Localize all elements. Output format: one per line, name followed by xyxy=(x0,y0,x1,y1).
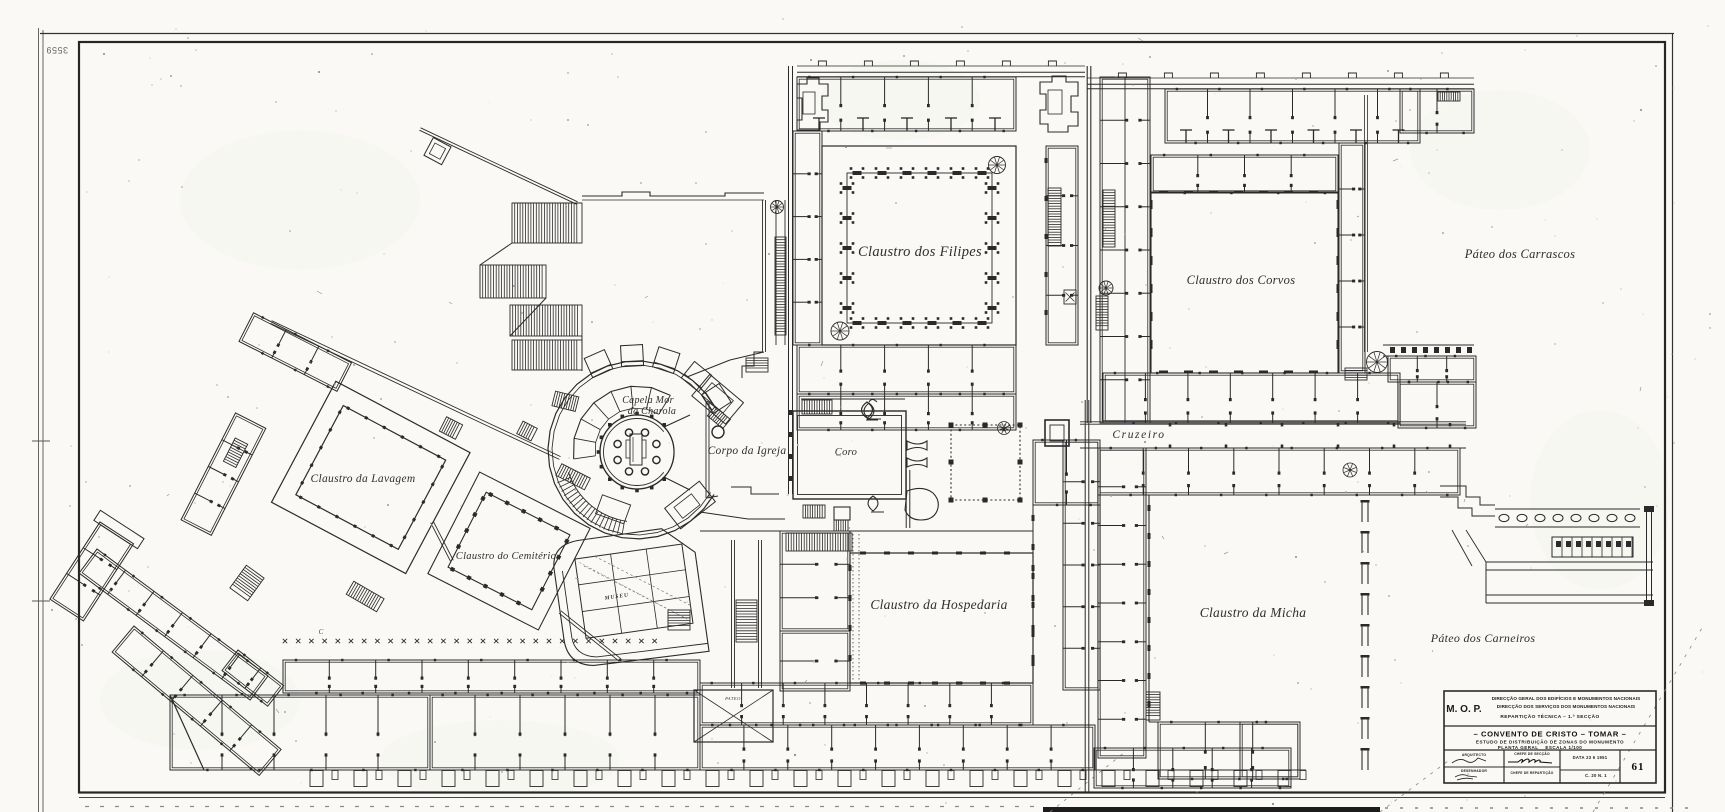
svg-text:PLANTA GERAL ESCALA 1/100: PLANTA GERAL ESCALA 1/100 xyxy=(1498,745,1583,750)
svg-text:CHEFE DE SECÇÃO: CHEFE DE SECÇÃO xyxy=(1514,751,1550,756)
svg-text:Corpo da Igreja: Corpo da Igreja xyxy=(708,445,787,457)
svg-text:M. O. P.: M. O. P. xyxy=(1446,704,1482,715)
svg-text:Coro: Coro xyxy=(835,447,857,458)
svg-text:DIRECÇÃO DOS SERVIÇOS DOS MONU: DIRECÇÃO DOS SERVIÇOS DOS MONUMENTOS NAC… xyxy=(1497,703,1635,709)
svg-text:ARQUITECTO: ARQUITECTO xyxy=(1462,753,1487,757)
svg-text:Claustro dos Corvos: Claustro dos Corvos xyxy=(1187,273,1296,287)
svg-text:da Charola: da Charola xyxy=(628,406,676,417)
svg-text:DIRECÇÃO GERAL DOS EDIFÍCIOS E: DIRECÇÃO GERAL DOS EDIFÍCIOS E MONUMENTO… xyxy=(1492,694,1641,701)
svg-text:3559: 3559 xyxy=(46,45,68,55)
svg-text:Páteo dos Carneiros: Páteo dos Carneiros xyxy=(1430,631,1536,645)
svg-text:Claustro do Cemitério: Claustro do Cemitério xyxy=(456,551,556,562)
svg-text:Claustro da Hospedaria: Claustro da Hospedaria xyxy=(870,597,1007,612)
svg-text:DATA 23 6 1951: DATA 23 6 1951 xyxy=(1573,755,1608,760)
svg-text:Claustro da Micha: Claustro da Micha xyxy=(1200,605,1307,620)
svg-text:Cruzeiro: Cruzeiro xyxy=(1112,429,1165,441)
svg-text:Páteo dos Carrascos: Páteo dos Carrascos xyxy=(1464,247,1576,261)
svg-text:DESENHADOR: DESENHADOR xyxy=(1461,769,1487,773)
svg-text:PATEO: PATEO xyxy=(724,696,741,701)
svg-text:Claustro da Lavagem: Claustro da Lavagem xyxy=(311,473,416,485)
svg-text:C. 20 N. 1: C. 20 N. 1 xyxy=(1585,773,1607,778)
svg-text:Capela Mor: Capela Mor xyxy=(622,395,674,406)
svg-text:– CONVENTO DE CRISTO – TOMAR –: – CONVENTO DE CRISTO – TOMAR – xyxy=(1473,730,1626,739)
svg-text:ESTUDO DE DISTRIBUIÇÃO DE ZONA: ESTUDO DE DISTRIBUIÇÃO DE ZONAS DO MONUM… xyxy=(1476,739,1624,745)
svg-text:C: C xyxy=(319,628,324,636)
svg-text:Claustro dos Filipes: Claustro dos Filipes xyxy=(858,244,982,260)
svg-text:CHEFE DE REPARTIÇÃO: CHEFE DE REPARTIÇÃO xyxy=(1511,770,1554,775)
svg-text:61: 61 xyxy=(1632,761,1645,773)
